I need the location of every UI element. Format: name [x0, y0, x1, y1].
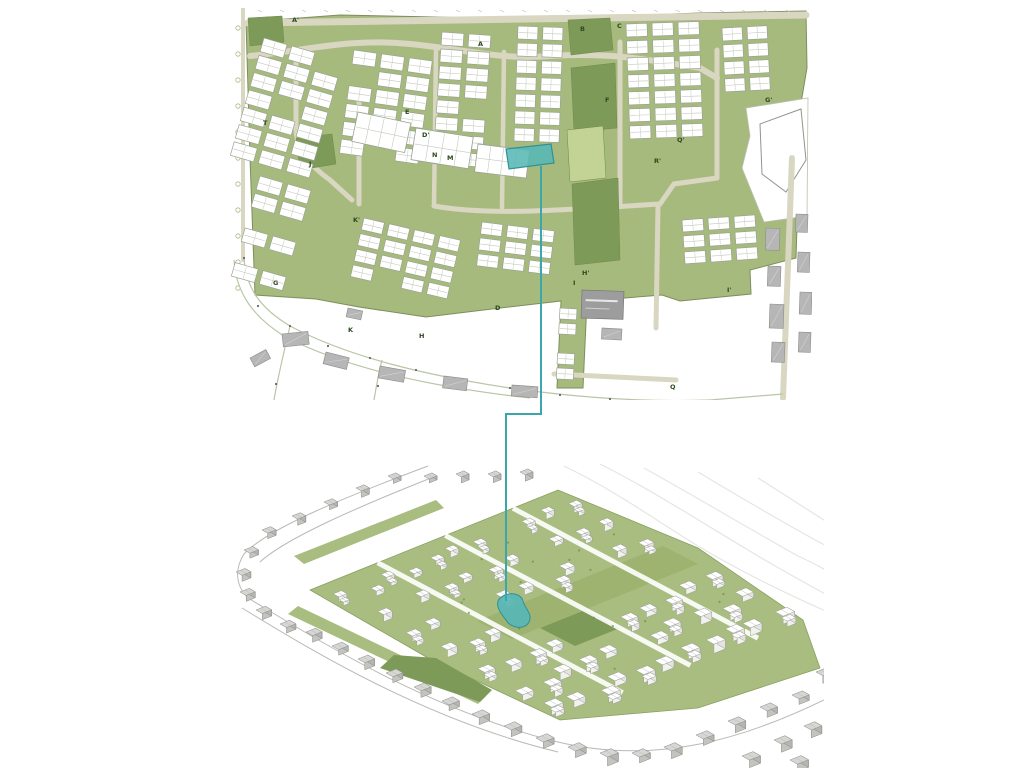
existing-building [358, 655, 375, 670]
plan-label-R-prime: R' [654, 157, 661, 165]
existing-building [456, 471, 469, 483]
building-plot [626, 23, 647, 37]
building-plot [515, 111, 535, 125]
building-plot [556, 368, 574, 380]
existing-building [472, 710, 490, 725]
existing-building [414, 683, 431, 698]
building-plot [464, 85, 487, 100]
existing-building [774, 736, 792, 753]
building-plot [439, 66, 462, 81]
building-plot [481, 222, 503, 236]
building-plot [735, 231, 757, 244]
building-plot [710, 249, 732, 262]
existing-building [443, 376, 468, 391]
building-plot [408, 58, 433, 75]
existing-building [388, 473, 401, 484]
existing-building [696, 731, 714, 746]
existing-building [324, 499, 338, 510]
building-plot [530, 244, 552, 258]
masterplan-2d-view: A'ABCG'FED'NMTJK'GDKHH'II'Q'R'Q [230, 8, 812, 400]
existing-building [262, 527, 276, 539]
building-plot [441, 32, 464, 47]
building-plot [653, 56, 674, 70]
building-plot [477, 254, 499, 268]
building-plot [652, 22, 673, 36]
existing-building [816, 668, 824, 683]
existing-building [504, 722, 522, 737]
building-plot [655, 107, 676, 121]
building-plot [502, 257, 524, 271]
existing-building [771, 342, 785, 362]
building-plot [514, 128, 534, 142]
plan-label-Q-prime: Q' [677, 136, 685, 144]
building-plot [627, 57, 648, 71]
building-plot [528, 260, 550, 274]
building-plot [628, 74, 649, 88]
building-plot [352, 50, 377, 67]
building-plot [462, 119, 485, 134]
existing-building [520, 469, 533, 481]
building-plot [678, 21, 699, 35]
plan-label-D: D [495, 304, 501, 312]
existing-building [742, 752, 760, 768]
building-plot [748, 43, 769, 57]
building-plot [654, 73, 675, 87]
existing-building [792, 691, 809, 705]
existing-building [728, 717, 746, 733]
existing-building [581, 290, 624, 319]
building-plot [479, 238, 501, 252]
building-plot [680, 89, 701, 103]
plan-label-E: E [405, 108, 409, 116]
masterplan-figure: A'ABCG'FED'NMTJK'GDKHH'II'Q'R'Q [0, 0, 1024, 768]
existing-building [282, 331, 309, 347]
plan-label-N: N [432, 151, 437, 159]
building-plot [405, 76, 430, 93]
plan-label-Q: Q [670, 383, 676, 391]
building-plot [541, 78, 561, 92]
existing-building [600, 749, 618, 766]
building-plot [435, 117, 458, 132]
existing-building [601, 328, 622, 340]
building-plot [629, 108, 650, 122]
building-plot [557, 353, 575, 365]
plan-label-B: B [580, 25, 585, 33]
plan-label-F: F [605, 96, 609, 104]
building-plot [543, 27, 563, 41]
building-plot [380, 54, 405, 71]
building-plot [653, 39, 674, 53]
building-plot [680, 72, 701, 86]
existing-building [795, 214, 808, 232]
building-plot [682, 219, 704, 232]
plan-label-M: M [447, 154, 453, 162]
existing-building [760, 703, 778, 718]
building-plot [627, 40, 648, 54]
existing-building [424, 473, 437, 483]
building-plot [683, 234, 705, 247]
plan-label-H: H [419, 332, 424, 340]
building-plot [539, 129, 559, 143]
plan-label-T: T [263, 119, 268, 127]
building-plot [516, 77, 536, 91]
building-plot [540, 95, 560, 109]
existing-building [790, 756, 809, 768]
building-plot [628, 91, 649, 105]
existing-building [769, 304, 784, 328]
building-plot [541, 61, 561, 75]
building-plot [516, 60, 536, 74]
building-plot [504, 241, 526, 255]
building-plot [438, 83, 461, 98]
building-plot [532, 228, 554, 242]
building-plot [440, 49, 463, 64]
existing-building [280, 620, 296, 633]
existing-building [292, 513, 306, 526]
building-plot [725, 78, 746, 92]
building-plot [723, 44, 744, 58]
building-plot [654, 90, 675, 104]
building-plot [709, 233, 731, 246]
existing-building [799, 292, 812, 314]
plan-label-I-prime: I' [727, 286, 731, 294]
building-plot [724, 61, 745, 75]
building-plot [542, 44, 562, 58]
plan-label-C: C [617, 22, 622, 30]
building-plot [682, 123, 703, 137]
plan-label-D-prime: D' [422, 131, 429, 139]
building-plot [656, 124, 677, 138]
building-plot [679, 55, 700, 69]
plan-label-A: A [478, 40, 483, 48]
plan-label-I: I [573, 279, 575, 287]
existing-building [536, 734, 554, 749]
building-plot [559, 323, 577, 335]
building-plot [540, 112, 560, 126]
existing-building [798, 332, 811, 352]
building-plot [377, 72, 402, 89]
building-plot [515, 94, 535, 108]
building-plot [375, 90, 400, 107]
building-plot [506, 225, 528, 239]
building-plot [466, 68, 489, 83]
plan-label-H-prime: H' [582, 269, 589, 277]
existing-building [765, 228, 780, 250]
plan-label-K-prime: K' [353, 216, 360, 224]
existing-building [664, 743, 682, 759]
plan-label-G: G [273, 279, 278, 287]
building-plot [736, 247, 758, 260]
building-plot [734, 215, 756, 228]
building-plot [517, 43, 537, 57]
existing-building [804, 722, 822, 738]
building-plot [559, 308, 577, 320]
plan-label-G-prime: G' [765, 96, 772, 104]
existing-building [767, 266, 781, 286]
existing-building [797, 252, 810, 272]
building-plot [467, 51, 490, 66]
building-plot [681, 106, 702, 120]
building-plot [679, 38, 700, 52]
existing-building [488, 471, 501, 483]
building-plot [518, 26, 538, 40]
building-plot [750, 77, 771, 91]
existing-building [356, 485, 369, 498]
building-plot [749, 60, 770, 74]
building-plot [684, 250, 706, 263]
building-plot [722, 27, 743, 41]
building-plot [436, 100, 459, 115]
axonometric-3d-view [228, 462, 824, 768]
building-plot [747, 26, 768, 40]
building-plot [708, 217, 730, 230]
plan-label-A-prime: A' [292, 16, 299, 24]
building-plot [347, 86, 372, 103]
plan-label-J: J [308, 160, 311, 168]
existing-building [511, 385, 538, 398]
building-plot [630, 125, 651, 139]
